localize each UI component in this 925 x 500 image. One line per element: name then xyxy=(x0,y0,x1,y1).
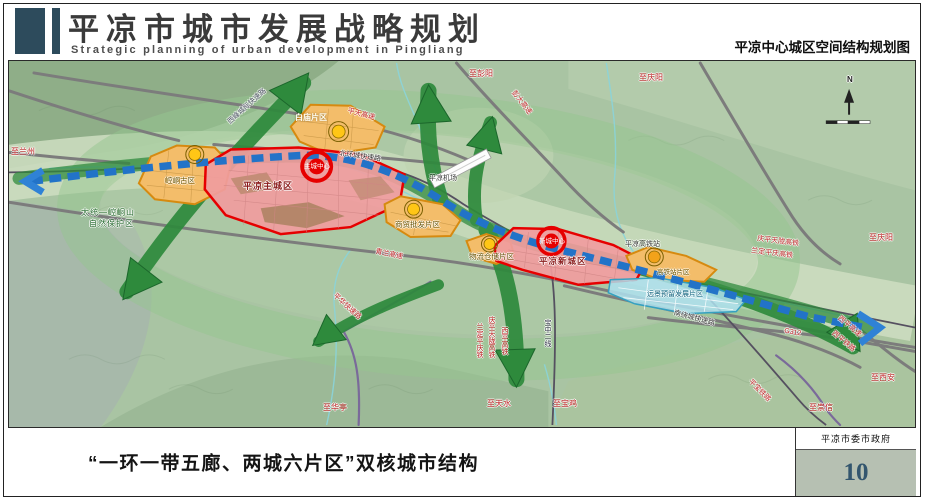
logo-bar xyxy=(52,8,60,54)
label-to-xian: 至西安 xyxy=(871,373,895,382)
structure-caption: “一环一带五廊、两城六片区”双核城市结构 xyxy=(88,449,479,476)
label-to-pengyang: 至彭阳 xyxy=(469,69,493,78)
page-title-english: Strategic planning of urban development … xyxy=(71,44,465,56)
government-credit: 平凉市委市政府 xyxy=(796,428,916,450)
label-to-tianshui: 至天水 xyxy=(487,399,511,408)
label-district-hsr: 高铁站片区 xyxy=(657,269,690,276)
label-to-baoji: 至宝鸡 xyxy=(553,399,577,408)
header: 平凉市城市发展战略规划 Strategic planning of urban … xyxy=(4,4,920,60)
label-district-baimiao: 白庙片区 xyxy=(295,113,327,122)
page-title: 平凉市城市发展战略规划 xyxy=(68,4,486,49)
logo-square xyxy=(15,8,45,54)
footer: “一环一带五廊、两城六片区”双核城市结构 平凉市委市政府 10 xyxy=(8,428,916,496)
label-main-city-center: 主城中心 xyxy=(295,163,339,170)
label-vertical-landingpingqing-rail: 兰定平庆铁 xyxy=(475,323,483,358)
page-frame: 平凉市城市发展战略规划 Strategic planning of urban … xyxy=(3,3,921,497)
label-vertical-baozhong-second-line: 宝中二线 xyxy=(543,319,551,347)
label-main-city: 平凉主城区 xyxy=(243,181,293,191)
label-to-huating: 至华亭 xyxy=(323,403,347,412)
label-vertical-qingpingtianlong-rail: 庆平天陇高铁 xyxy=(487,316,495,358)
node-trade xyxy=(408,203,420,215)
node-logistics xyxy=(484,239,495,250)
map-sheet-title: 平凉中心城区空间结构规划图 xyxy=(735,36,911,56)
page-number: 10 xyxy=(796,450,916,496)
scale-bar xyxy=(826,121,870,124)
label-to-chongxin: 至崇信 xyxy=(809,403,833,412)
label-district-future-reserve: 远景预留发展片区 xyxy=(647,291,703,299)
node-baimiao xyxy=(332,125,345,138)
label-nature-reserve-line2: 自然保护区 xyxy=(89,219,134,228)
label-to-lanzhou: 至兰州 xyxy=(11,147,35,156)
label-district-kongtong-old: 崆峒古区 xyxy=(165,177,195,186)
compass-north-label: N xyxy=(847,75,853,84)
planning-map: 至兰州 太统—崆峒山 自然保护区 西峰城际快速路 白庙片区 平天高速 北环城快速… xyxy=(8,60,916,428)
label-to-qingyang-right: 至庆阳 xyxy=(869,233,893,242)
label-pingliang-airport: 平凉机场 xyxy=(429,175,457,183)
node-hsr xyxy=(648,251,660,263)
label-vertical-xiping-hsr: 西平高铁 xyxy=(500,327,508,355)
label-district-trade: 商贸批发片区 xyxy=(395,221,440,230)
label-new-city: 平凉新城区 xyxy=(539,257,587,267)
label-to-qingyang-top: 至庆阳 xyxy=(639,73,663,82)
title-block: 平凉市委市政府 10 xyxy=(795,428,916,496)
label-hsr-station: 平凉高铁站 xyxy=(625,241,660,249)
label-new-city-center: 新城中心 xyxy=(530,238,574,245)
label-nature-reserve-line1: 太统—崆峒山 xyxy=(81,208,135,217)
label-district-logistics: 物流仓储片区 xyxy=(469,253,514,262)
node-kongtong xyxy=(189,149,201,161)
